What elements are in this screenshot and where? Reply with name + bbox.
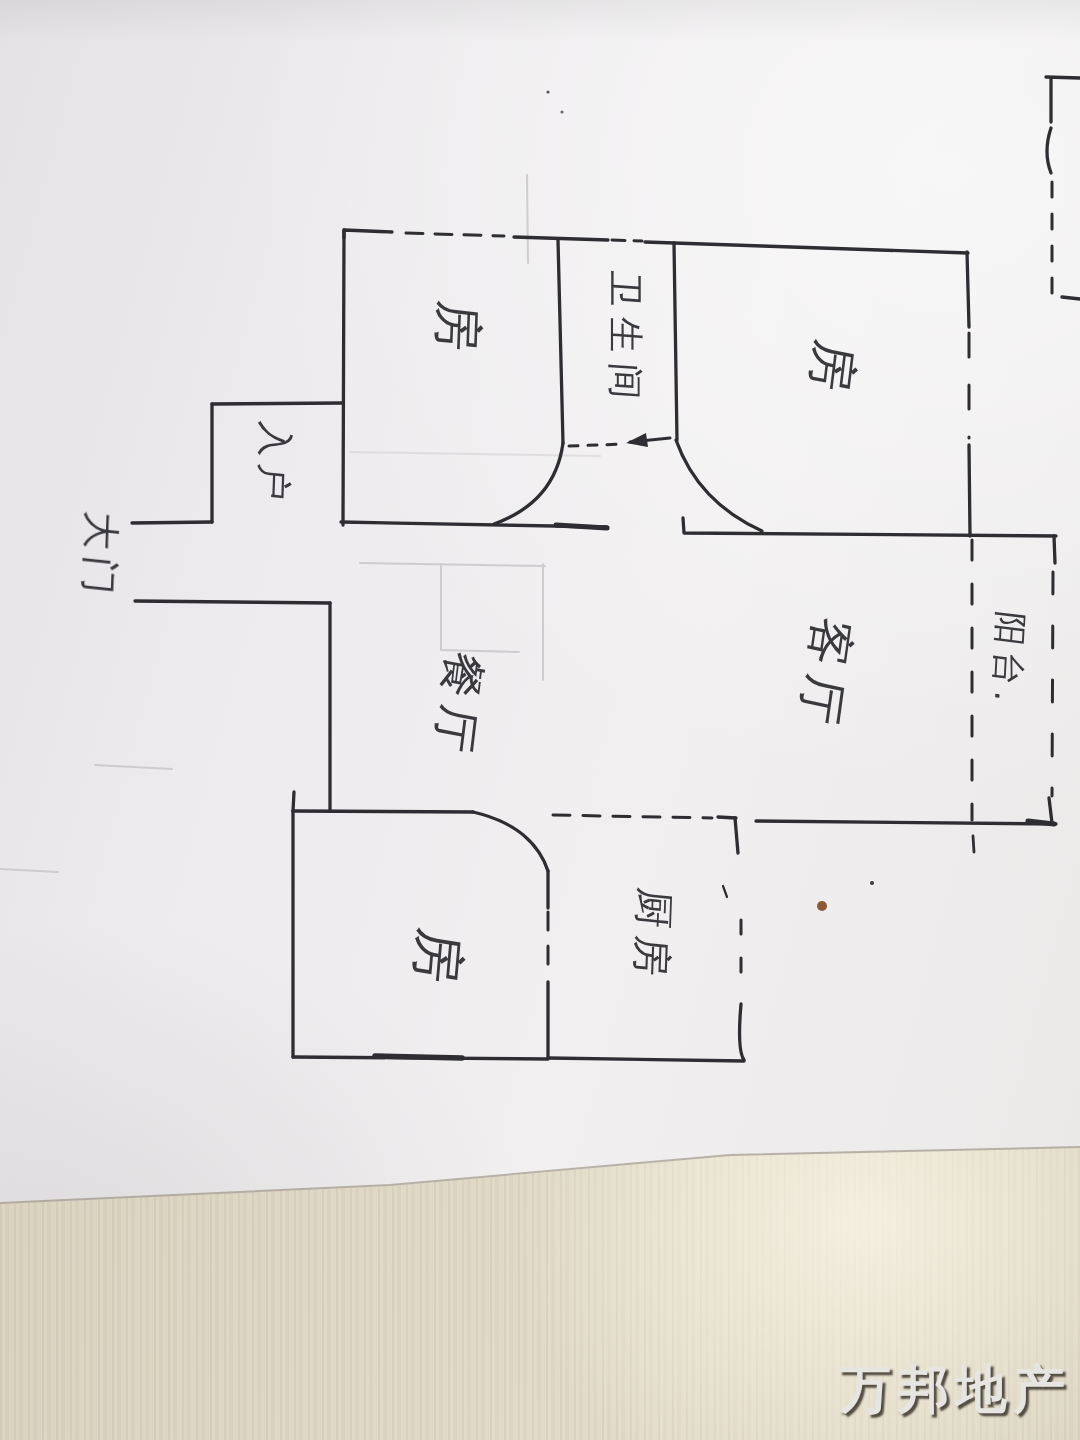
room-label-balcony: 阳台.: [990, 610, 1029, 711]
room-label-bedroom-top-right: 房: [805, 336, 860, 395]
door-swing-arc: [473, 812, 548, 871]
room-label-kitchen: 厨房: [631, 886, 674, 986]
walls-dashed: [406, 182, 1053, 980]
room-label-main-door: 大门: [80, 510, 121, 602]
photo-scene: 房 卫生间 房 入户 大门 餐厅 客厅 阳台. 房 厨房 万邦地产: [0, 0, 1080, 1440]
bathroom-door-dashes: [569, 444, 625, 446]
room-label-living: 客厅: [794, 614, 857, 739]
door-arrow: [626, 433, 670, 447]
paper-specks: [546, 90, 874, 911]
room-label-bathroom: 卫生间: [607, 270, 643, 411]
walls-solid: [132, 77, 1080, 1061]
stain-dot: [817, 901, 827, 911]
room-label-dining: 餐厅: [430, 648, 488, 764]
watermark-text: 万邦地产: [839, 1355, 1071, 1425]
room-label-bedroom-top-left: 房: [432, 298, 484, 353]
room-label-bedroom-bottom: 房: [409, 925, 467, 987]
room-label-entrance: 入户: [255, 420, 294, 508]
hallway-arc-right: [676, 440, 762, 531]
balcony-outer-line: [1052, 572, 1053, 796]
